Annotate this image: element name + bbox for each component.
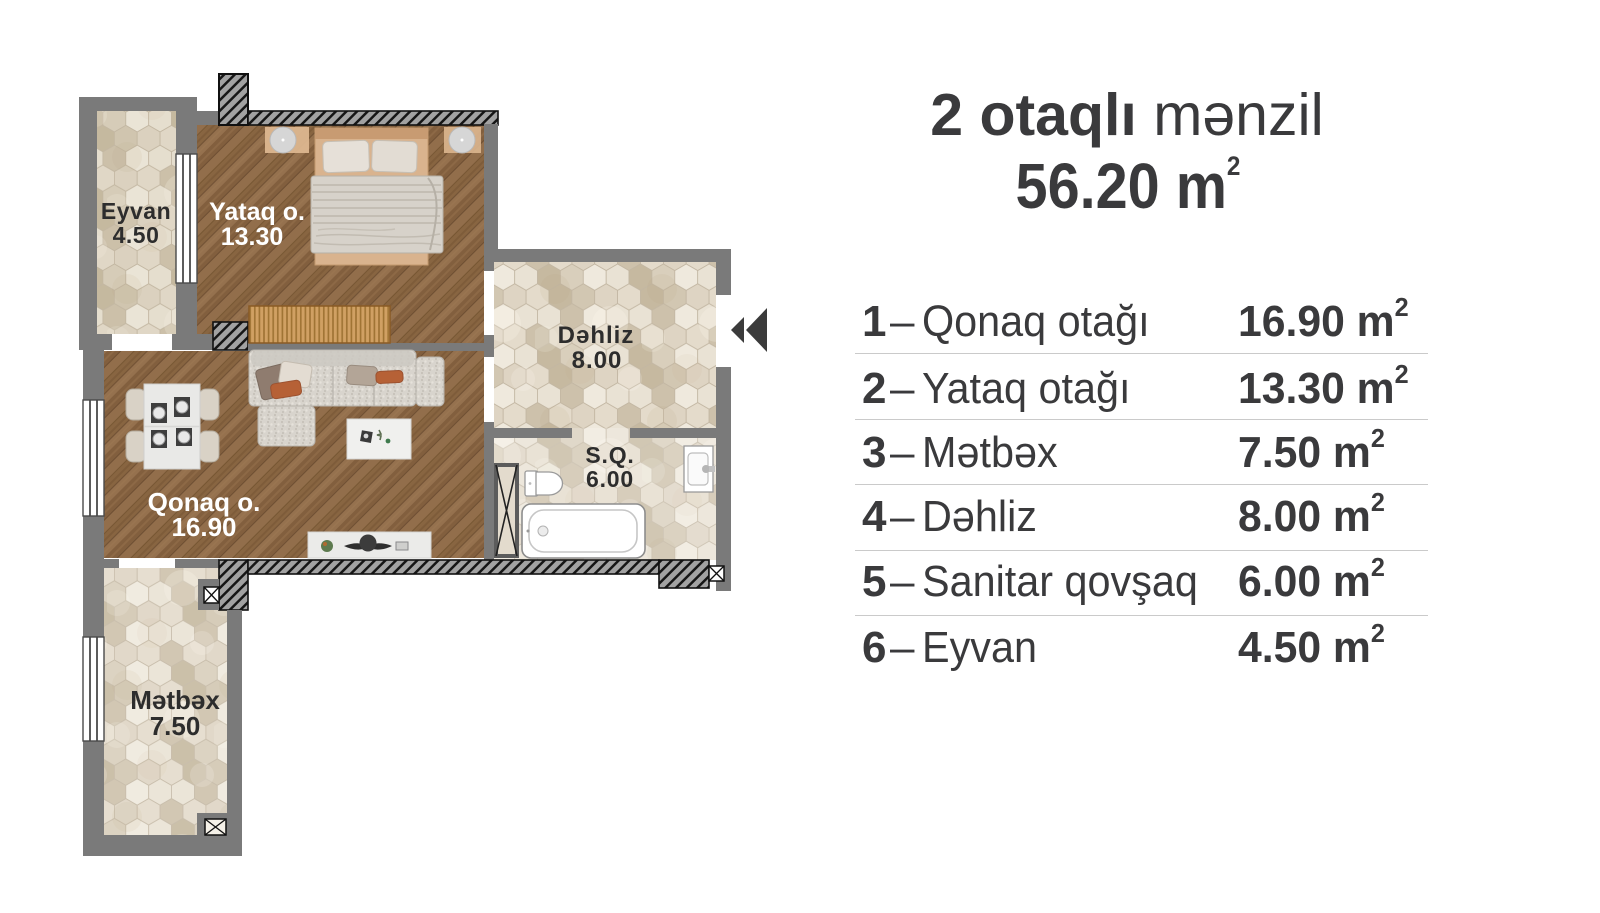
svg-text:4.50: 4.50: [113, 222, 160, 248]
svg-text:6.00: 6.00: [586, 466, 634, 492]
svg-text:16.90: 16.90: [171, 512, 236, 542]
svg-text:13.30: 13.30: [221, 223, 284, 251]
svg-text:7.50: 7.50: [150, 711, 201, 741]
svg-text:S.Q.: S.Q.: [585, 442, 634, 468]
svg-text:Eyvan: Eyvan: [101, 198, 171, 224]
svg-text:Yataq o.: Yataq o.: [209, 198, 305, 226]
svg-text:Dəhliz: Dəhliz: [558, 322, 635, 349]
svg-text:8.00: 8.00: [572, 347, 623, 374]
